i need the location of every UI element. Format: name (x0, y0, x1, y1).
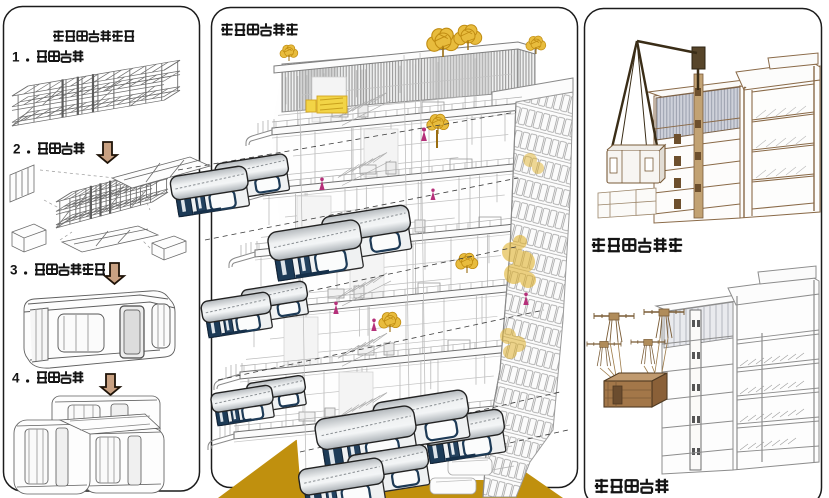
svg-text:1: 1 (12, 50, 20, 65)
svg-text:4: 4 (12, 371, 20, 386)
svg-text:3: 3 (10, 263, 18, 278)
svg-text:2: 2 (13, 142, 21, 157)
